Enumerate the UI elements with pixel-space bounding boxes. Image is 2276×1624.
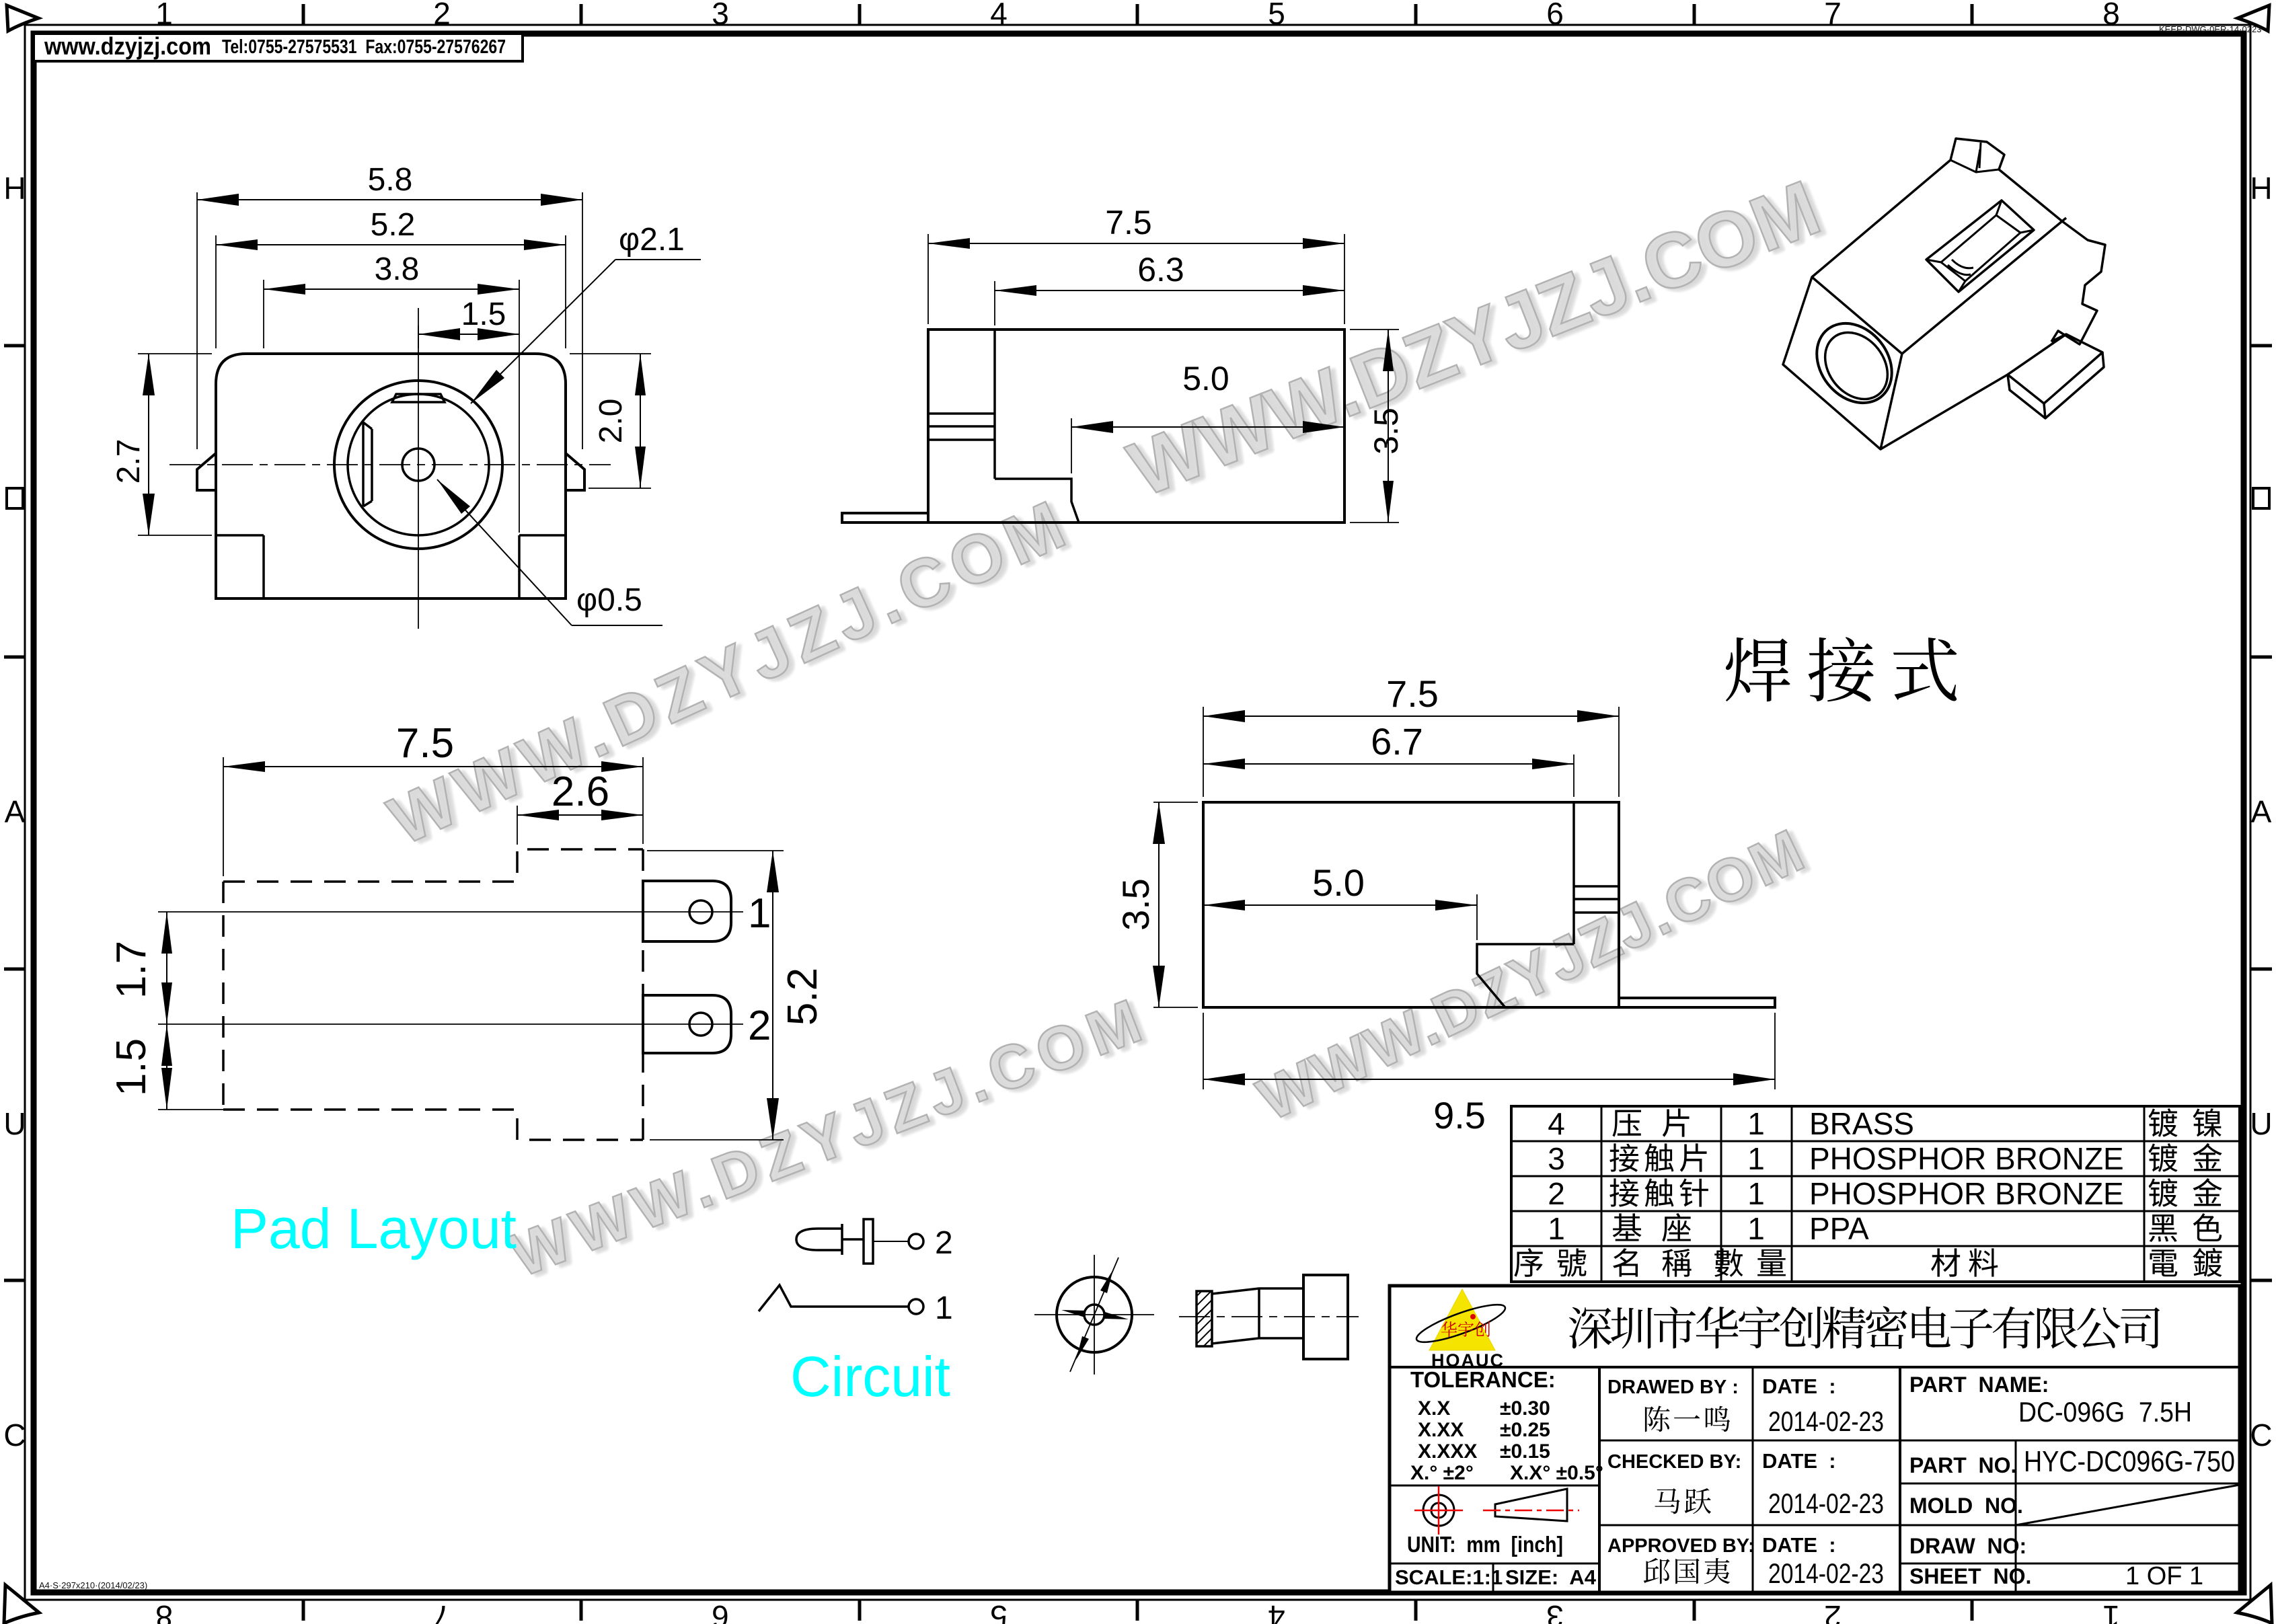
svg-text:8: 8 bbox=[155, 1599, 173, 1624]
svg-text:X.X° ±0.5°: X.X° ±0.5° bbox=[1510, 1462, 1603, 1484]
svg-text:1: 1 bbox=[1548, 1211, 1565, 1246]
svg-text:DATE :: DATE : bbox=[1762, 1533, 1836, 1557]
svg-text:3.8: 3.8 bbox=[375, 252, 420, 287]
svg-text:7.5: 7.5 bbox=[396, 720, 454, 767]
svg-text:DRAW NO:: DRAW NO: bbox=[1909, 1534, 2026, 1558]
svg-text:7.5: 7.5 bbox=[1386, 672, 1439, 715]
svg-text:1: 1 bbox=[1747, 1106, 1765, 1141]
svg-text:1: 1 bbox=[1747, 1141, 1765, 1176]
svg-text:DATE :: DATE : bbox=[1762, 1375, 1836, 1398]
svg-text:KEEP·DWG·0ER·14·0223: KEEP·DWG·0ER·14·0223 bbox=[2159, 24, 2261, 34]
svg-text:1.5: 1.5 bbox=[108, 1038, 155, 1096]
svg-text:WWW.DZYJZJ.COM: WWW.DZYJZJ.COM bbox=[1118, 163, 1831, 513]
svg-text:6: 6 bbox=[1546, 0, 1564, 31]
svg-text:X.X: X.X bbox=[1418, 1397, 1450, 1420]
svg-text:2: 2 bbox=[433, 0, 451, 31]
svg-text:9.5: 9.5 bbox=[1433, 1094, 1486, 1136]
svg-text:TOLERANCE:: TOLERANCE: bbox=[1410, 1367, 1556, 1392]
svg-text:3: 3 bbox=[712, 0, 729, 31]
svg-text:PART NAME:: PART NAME: bbox=[1909, 1372, 2049, 1397]
svg-text:H: H bbox=[2250, 171, 2272, 206]
svg-text:X.XXX: X.XXX bbox=[1418, 1440, 1477, 1463]
svg-text:1.5: 1.5 bbox=[461, 297, 506, 332]
svg-text:1: 1 bbox=[1747, 1211, 1765, 1246]
svg-text:www.dzyjzj.com: www.dzyjzj.com bbox=[44, 32, 211, 60]
svg-text:SIZE: A4: SIZE: A4 bbox=[1505, 1565, 1597, 1589]
svg-text:7.5: 7.5 bbox=[1105, 204, 1152, 241]
svg-text:2: 2 bbox=[1548, 1176, 1565, 1211]
svg-text:3: 3 bbox=[1548, 1141, 1565, 1176]
svg-text:X.XX: X.XX bbox=[1418, 1419, 1464, 1441]
svg-text:5.2: 5.2 bbox=[371, 207, 416, 243]
svg-text:1 OF 1: 1 OF 1 bbox=[2125, 1562, 2203, 1590]
svg-text:APPROVED BY:: APPROVED BY: bbox=[1607, 1535, 1755, 1557]
svg-text:2.7: 2.7 bbox=[111, 439, 147, 484]
svg-text:8: 8 bbox=[2102, 0, 2120, 31]
svg-text:BRASS: BRASS bbox=[1809, 1106, 1914, 1141]
svg-text:A: A bbox=[5, 794, 26, 829]
svg-text:DRAWED BY :: DRAWED BY : bbox=[1607, 1377, 1739, 1398]
svg-text:WWW.DZYJZJ.COM: WWW.DZYJZJ.COM bbox=[378, 484, 1082, 859]
svg-text:φ2.1: φ2.1 bbox=[619, 222, 685, 258]
svg-text:±0.15: ±0.15 bbox=[1500, 1440, 1550, 1463]
svg-text:5: 5 bbox=[1268, 0, 1285, 31]
svg-text:5: 5 bbox=[990, 1599, 1008, 1624]
svg-text:2014-02-23: 2014-02-23 bbox=[1768, 1487, 1884, 1519]
svg-text:2: 2 bbox=[1824, 1599, 1842, 1624]
svg-text:A: A bbox=[2251, 794, 2272, 829]
svg-text:6.7: 6.7 bbox=[1371, 720, 1423, 763]
svg-text:4: 4 bbox=[1268, 1599, 1285, 1624]
svg-text:1: 1 bbox=[2102, 1599, 2120, 1624]
svg-text:2014-02-23: 2014-02-23 bbox=[1768, 1557, 1884, 1589]
svg-text:4: 4 bbox=[1548, 1106, 1565, 1141]
svg-text:2.0: 2.0 bbox=[593, 399, 629, 444]
svg-text:H: H bbox=[3, 171, 26, 206]
svg-text:4: 4 bbox=[990, 0, 1008, 31]
svg-text:5.0: 5.0 bbox=[1182, 360, 1229, 397]
svg-text:2: 2 bbox=[748, 1003, 771, 1049]
svg-text:C: C bbox=[2250, 1418, 2272, 1453]
svg-text:2014-02-23: 2014-02-23 bbox=[1768, 1405, 1884, 1437]
svg-text:2.6: 2.6 bbox=[552, 769, 609, 815]
svg-text:5.2: 5.2 bbox=[780, 968, 826, 1026]
svg-text:3.5: 3.5 bbox=[1367, 408, 1405, 455]
svg-text:±0.25: ±0.25 bbox=[1500, 1419, 1550, 1441]
svg-text:2: 2 bbox=[935, 1225, 953, 1261]
svg-text:WWW.DZYJZJ.COM: WWW.DZYJZJ.COM bbox=[502, 984, 1157, 1290]
svg-text:1: 1 bbox=[748, 890, 771, 937]
svg-text:U: U bbox=[3, 1106, 26, 1141]
svg-text:1: 1 bbox=[935, 1290, 953, 1326]
svg-text:Pad Layout: Pad Layout bbox=[231, 1197, 517, 1260]
svg-text:MOLD NO.: MOLD NO. bbox=[1909, 1494, 2023, 1518]
svg-text:±0.30: ±0.30 bbox=[1500, 1397, 1550, 1420]
svg-text:HYC-DC096G-750: HYC-DC096G-750 bbox=[2024, 1445, 2235, 1478]
svg-text:SCALE:1:1: SCALE:1:1 bbox=[1395, 1565, 1503, 1589]
svg-text:U: U bbox=[2250, 1106, 2272, 1141]
svg-text:Circuit: Circuit bbox=[790, 1345, 950, 1408]
svg-text:Tel:0755-27575531 Fax:0755-27: Tel:0755-27575531 Fax:0755-27576267 bbox=[222, 36, 506, 58]
svg-text:7: 7 bbox=[1824, 0, 1842, 31]
svg-text:7: 7 bbox=[433, 1599, 451, 1624]
svg-text:X.° ±2°: X.° ±2° bbox=[1410, 1462, 1474, 1484]
svg-text:5.8: 5.8 bbox=[368, 162, 413, 198]
svg-text:UNIT: mm [inch]: UNIT: mm [inch] bbox=[1407, 1532, 1563, 1557]
svg-text:1.7: 1.7 bbox=[108, 941, 155, 999]
svg-text:DC-096G 7.5H: DC-096G 7.5H bbox=[2018, 1396, 2192, 1428]
svg-text:PHOSPHOR BRONZE: PHOSPHOR BRONZE bbox=[1809, 1176, 2124, 1211]
svg-text:φ0.5: φ0.5 bbox=[576, 582, 642, 618]
svg-text:3: 3 bbox=[1546, 1599, 1564, 1624]
svg-text:SHEET NO.: SHEET NO. bbox=[1909, 1564, 2031, 1588]
svg-text:1: 1 bbox=[1747, 1176, 1765, 1211]
svg-text:PART NO.: PART NO. bbox=[1909, 1453, 2016, 1477]
svg-text:1: 1 bbox=[155, 0, 173, 31]
svg-text:5.0: 5.0 bbox=[1312, 861, 1365, 904]
svg-text:DATE :: DATE : bbox=[1762, 1449, 1836, 1473]
svg-text:PHOSPHOR BRONZE: PHOSPHOR BRONZE bbox=[1809, 1141, 2124, 1176]
svg-text:6.3: 6.3 bbox=[1137, 251, 1184, 288]
svg-text:C: C bbox=[3, 1418, 26, 1453]
svg-text:CHECKED BY:: CHECKED BY: bbox=[1607, 1451, 1741, 1473]
svg-text:3.5: 3.5 bbox=[1114, 878, 1157, 931]
svg-text:A4·S·297x210·(2014/02/23): A4·S·297x210·(2014/02/23) bbox=[39, 1580, 147, 1590]
svg-text:PPA: PPA bbox=[1809, 1211, 1869, 1246]
svg-text:6: 6 bbox=[712, 1599, 729, 1624]
